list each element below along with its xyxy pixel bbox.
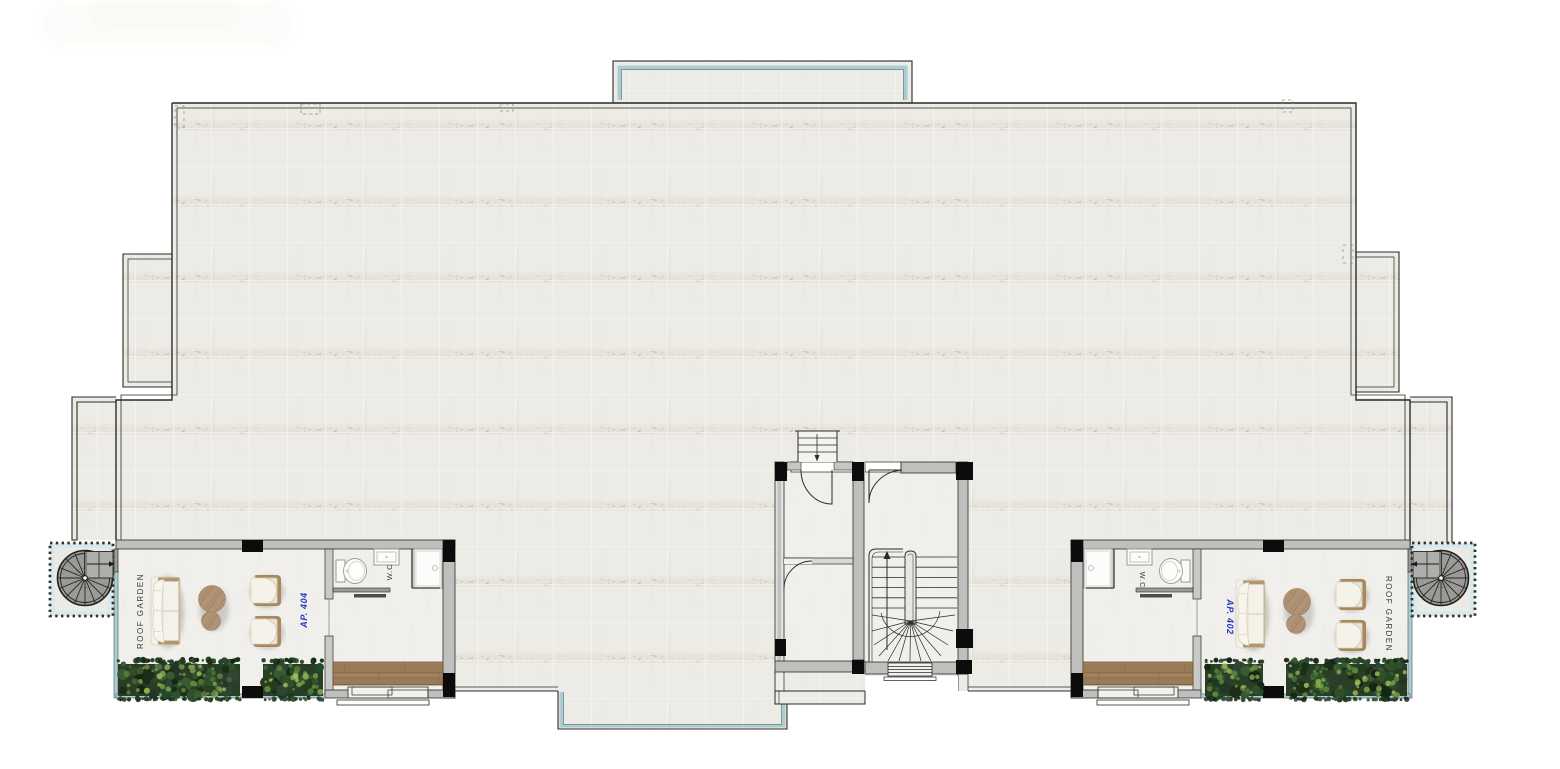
- svg-text:W.C: W.C: [1138, 572, 1147, 589]
- svg-text:W.C: W.C: [385, 564, 394, 581]
- svg-text:ROOF GARDEN: ROOF GARDEN: [136, 573, 145, 649]
- svg-text:AP. 402: AP. 402: [1225, 598, 1235, 635]
- svg-text:AP. 404: AP. 404: [299, 592, 309, 629]
- svg-text:ROOF GARDEN: ROOF GARDEN: [1384, 576, 1393, 652]
